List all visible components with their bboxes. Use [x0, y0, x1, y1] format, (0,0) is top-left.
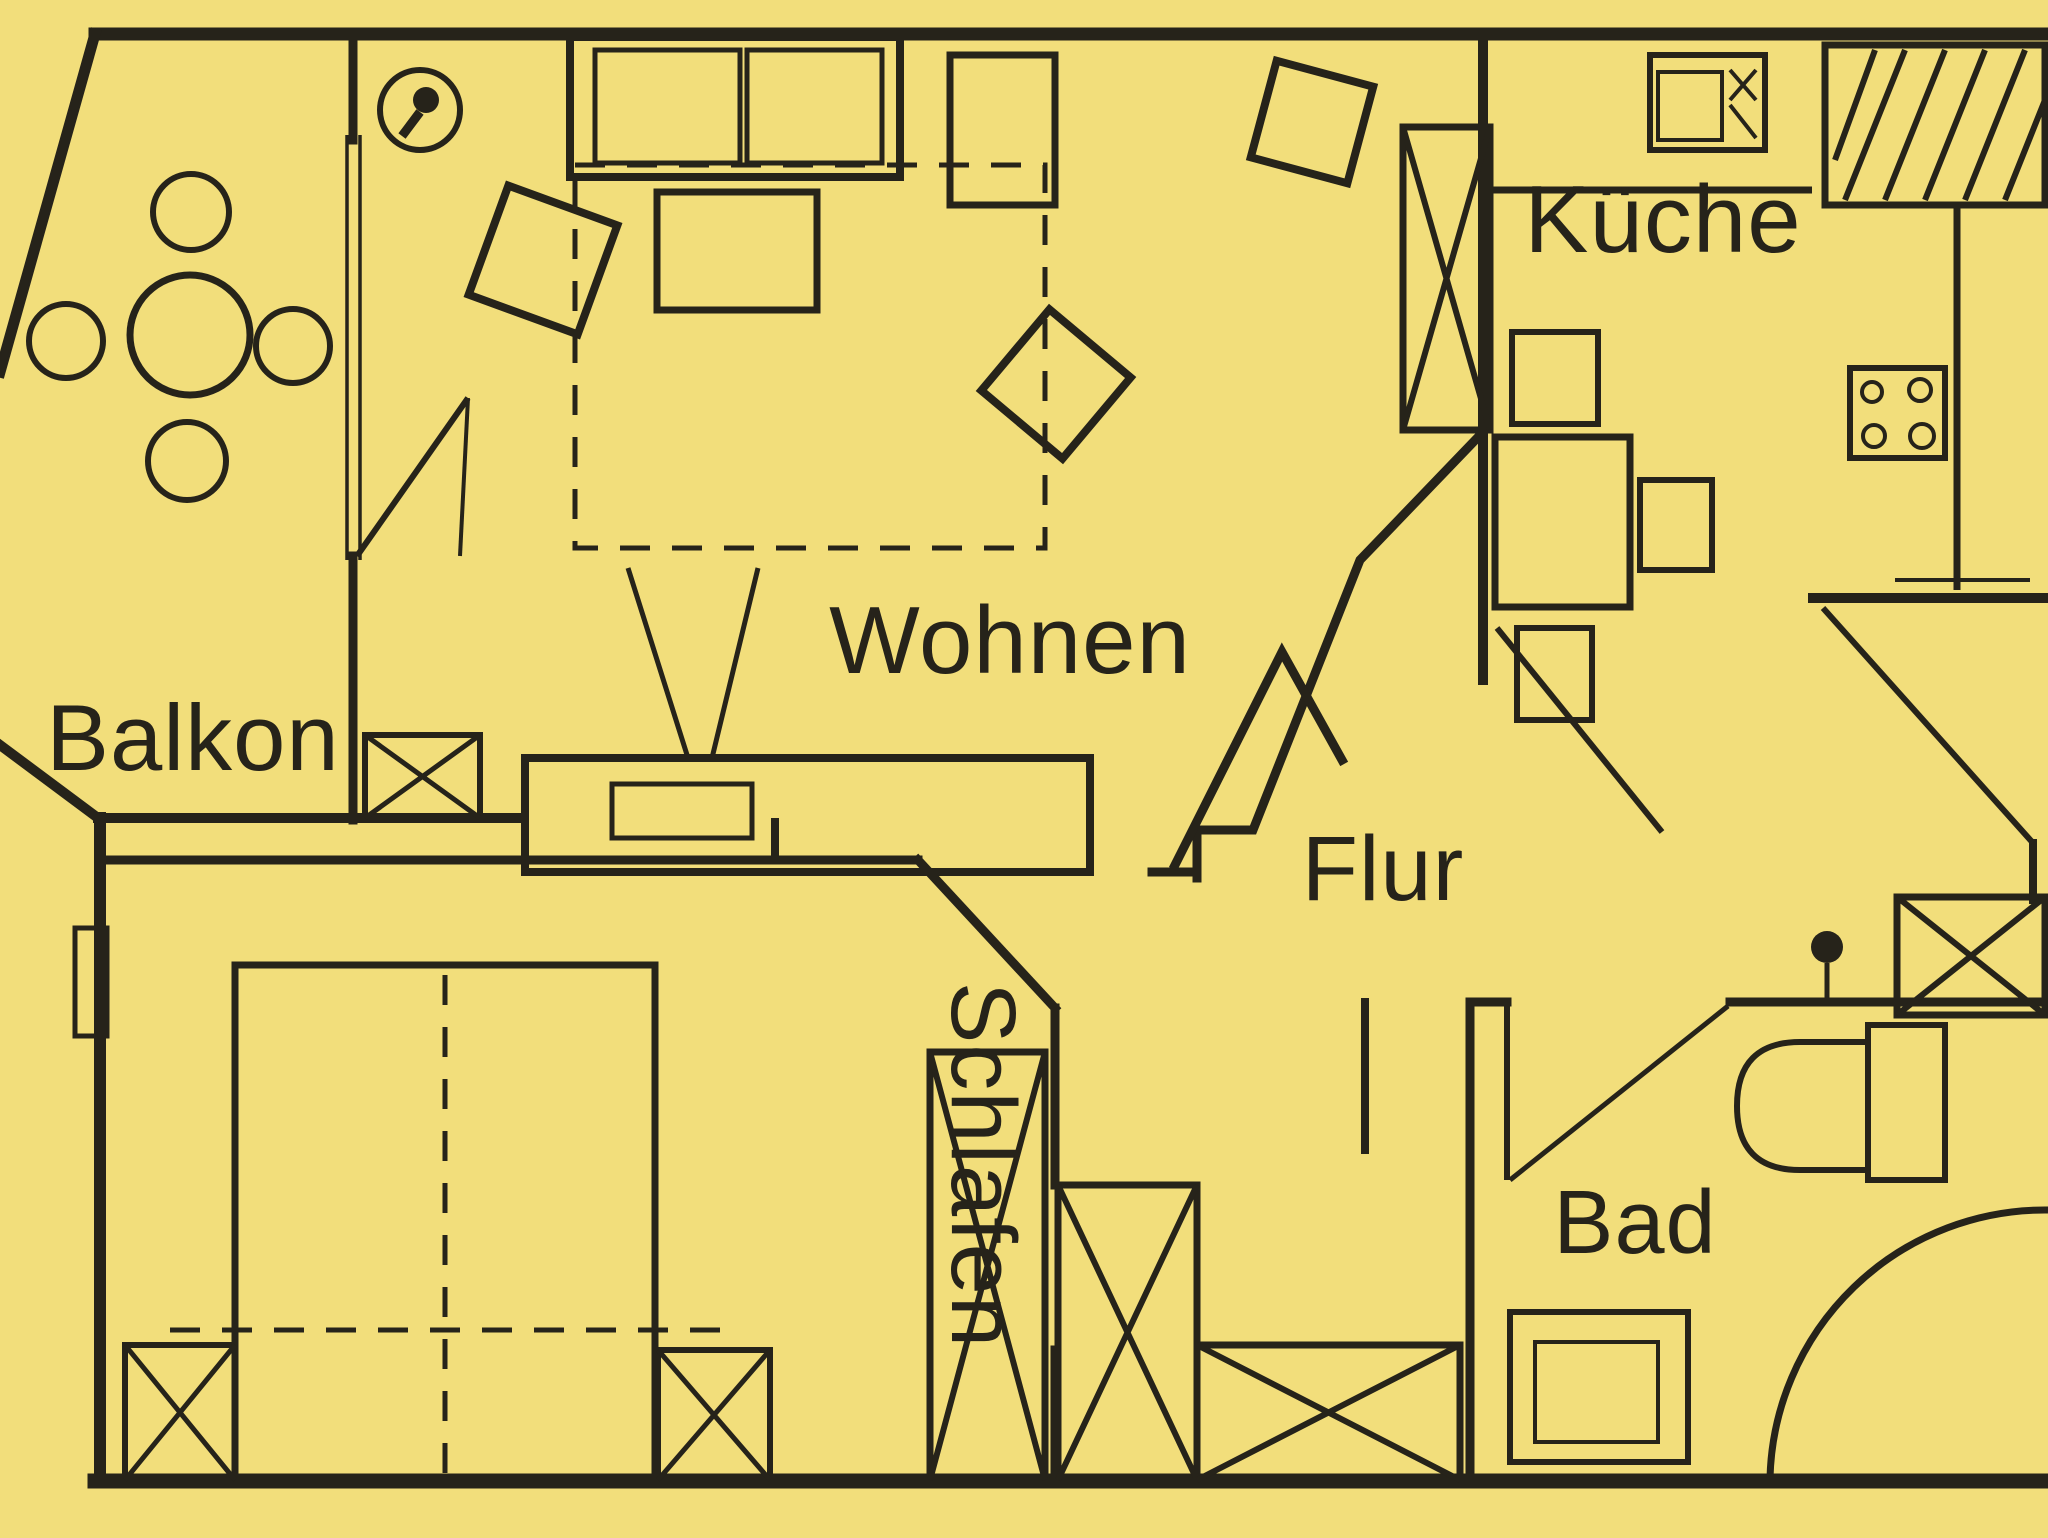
washbasin-bowl — [1535, 1342, 1658, 1442]
hall-storage — [1058, 897, 2045, 1480]
nightstand-x-left — [125, 1345, 235, 1480]
living-room-furniture — [365, 37, 1490, 872]
room-label-bad: Bad — [1553, 1173, 1716, 1273]
doors — [357, 398, 2033, 1180]
toilet-tank — [1868, 1025, 1945, 1180]
balcony-chair-bottom — [148, 422, 226, 500]
burner — [1862, 382, 1882, 402]
radiator-x-box — [365, 735, 480, 818]
cabinet-x-tall — [1403, 127, 1490, 430]
room-label-schlafen: Schlafen — [932, 982, 1034, 1348]
kitchen-chair-bottom — [1517, 628, 1592, 720]
rug-dashed-outline — [575, 165, 1045, 548]
sofa-cushion-left — [595, 50, 740, 163]
kitchen-sink — [1650, 55, 1765, 150]
room-label-balkon: Balkon — [46, 685, 339, 790]
wardrobe-x-flur — [1058, 1185, 1197, 1480]
sink-faucet-marks — [1730, 70, 1756, 138]
toilet-bowl — [1737, 1042, 1868, 1170]
nightstand-x-right — [658, 1350, 770, 1480]
sofa-cushion-right — [747, 50, 882, 163]
balcony-window-band — [347, 135, 360, 560]
corner-shower-arc — [1770, 1210, 2048, 1478]
room-label-kueche: Küche — [1524, 166, 1801, 273]
ceiling-lamp-icon — [380, 70, 460, 150]
burner — [1863, 425, 1885, 447]
double-bed — [170, 965, 725, 1480]
armchair-bottom-right — [981, 309, 1130, 458]
kitchen-furniture — [1493, 45, 2045, 720]
stove — [1850, 368, 1945, 458]
bedroom-furniture — [75, 928, 1045, 1480]
armchair-left — [469, 186, 618, 335]
kitchen-table — [1495, 437, 1630, 607]
balcony-door-leaf — [357, 398, 468, 556]
balcony-round-table — [130, 275, 250, 395]
wall-balcony-left-diagonal — [0, 34, 95, 372]
sideboard-x-wide — [1197, 1345, 1460, 1480]
bath-door-swing — [1510, 1006, 1728, 1180]
room-label-wohnen: Wohnen — [829, 587, 1191, 694]
sink-basin — [1658, 72, 1722, 140]
entry-door-leaf — [1823, 608, 2033, 843]
kitchen-door-leaf — [1497, 628, 1662, 832]
tv — [612, 784, 752, 838]
side-table — [950, 55, 1055, 205]
wall-flur-west — [1197, 432, 1483, 878]
burner — [1910, 424, 1934, 448]
coffee-table — [657, 192, 817, 310]
balcony-chair-right — [256, 309, 330, 383]
sofa — [570, 37, 900, 177]
tv-pointer-lines — [628, 568, 758, 758]
washbasin — [1510, 1312, 1688, 1462]
shaft-x-corridor — [1897, 897, 2045, 1015]
balcony-chair-left — [29, 304, 103, 378]
balcony-door-swing — [460, 398, 468, 556]
kitchen-chair-right — [1640, 480, 1712, 570]
shaft-hatched-block — [1825, 45, 2045, 205]
balcony-chair-top — [153, 174, 229, 250]
kitchen-chair-top — [1512, 332, 1598, 424]
room-label-flur: Flur — [1302, 818, 1464, 920]
floor-plan: Balkon Wohnen Küche Flur Schlafen Bad — [0, 0, 2048, 1538]
armchair-top-right — [1251, 61, 1373, 183]
burner — [1909, 379, 1931, 401]
door-handle-dot — [1811, 931, 1843, 963]
toilet — [1737, 1025, 1945, 1180]
